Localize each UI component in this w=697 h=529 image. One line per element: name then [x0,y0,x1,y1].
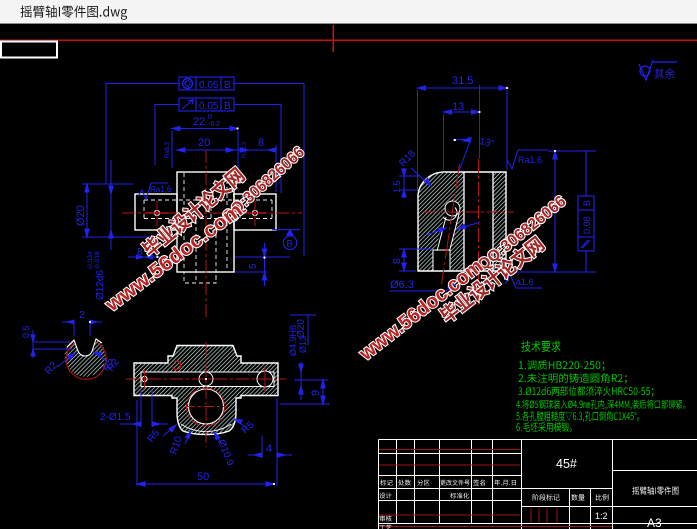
svg-text:R5: R5 [146,428,163,445]
svg-text:5: 5 [248,263,259,269]
svg-text:-0.2: -0.2 [208,121,220,128]
svg-text:R2: R2 [43,360,60,377]
svg-text:2: 2 [79,310,85,321]
svg-text:4: 4 [266,443,272,455]
svg-text:R10: R10 [168,435,184,456]
svg-text:8: 8 [392,258,403,264]
svg-text:0: 0 [208,114,212,121]
svg-text:0.05: 0.05 [199,101,219,112]
svg-text:A3: A3 [647,516,662,529]
svg-text:Ra6.3: Ra6.3 [165,141,171,158]
svg-text:31.5: 31.5 [452,75,473,87]
svg-text:9: 9 [310,390,322,396]
svg-text:-0.034: -0.034 [87,251,94,270]
svg-text:13: 13 [452,101,464,113]
svg-text:13°: 13° [478,136,495,150]
svg-text:a1.6: a1.6 [516,277,534,287]
svg-text:0.08: 0.08 [582,216,592,234]
svg-text:Ra1.6: Ra1.6 [150,185,172,194]
svg-text:Ø4.9H8: Ø4.9H8 [288,325,298,356]
svg-text:0.05: 0.05 [199,80,219,91]
svg-text:R18: R18 [397,148,418,169]
svg-text:0.5: 0.5 [21,325,31,338]
svg-text:Ø10.9: Ø10.9 [215,438,236,468]
svg-text:Ø13: Ø13 [298,336,308,353]
svg-text:45#: 45# [556,457,577,471]
svg-text:B: B [287,239,293,249]
svg-text:Ø20: Ø20 [75,205,87,226]
svg-text:1:2: 1:2 [595,511,608,521]
svg-text:-0.018: -0.018 [94,251,101,270]
svg-text:B: B [582,200,592,206]
svg-text:B: B [224,101,231,112]
svg-text:Ø6.3: Ø6.3 [390,279,414,291]
svg-text:B: B [224,80,231,91]
svg-text:20: 20 [198,137,210,149]
svg-text:Ra1.6: Ra1.6 [518,155,542,165]
svg-text:22: 22 [193,116,205,128]
svg-text:R5: R5 [240,419,257,436]
svg-text:8: 8 [137,247,143,258]
svg-text:8: 8 [258,137,264,149]
svg-text:1.5: 1.5 [392,180,402,193]
svg-text:2-Ø1.5: 2-Ø1.5 [100,412,131,423]
svg-text:50: 50 [197,471,209,483]
